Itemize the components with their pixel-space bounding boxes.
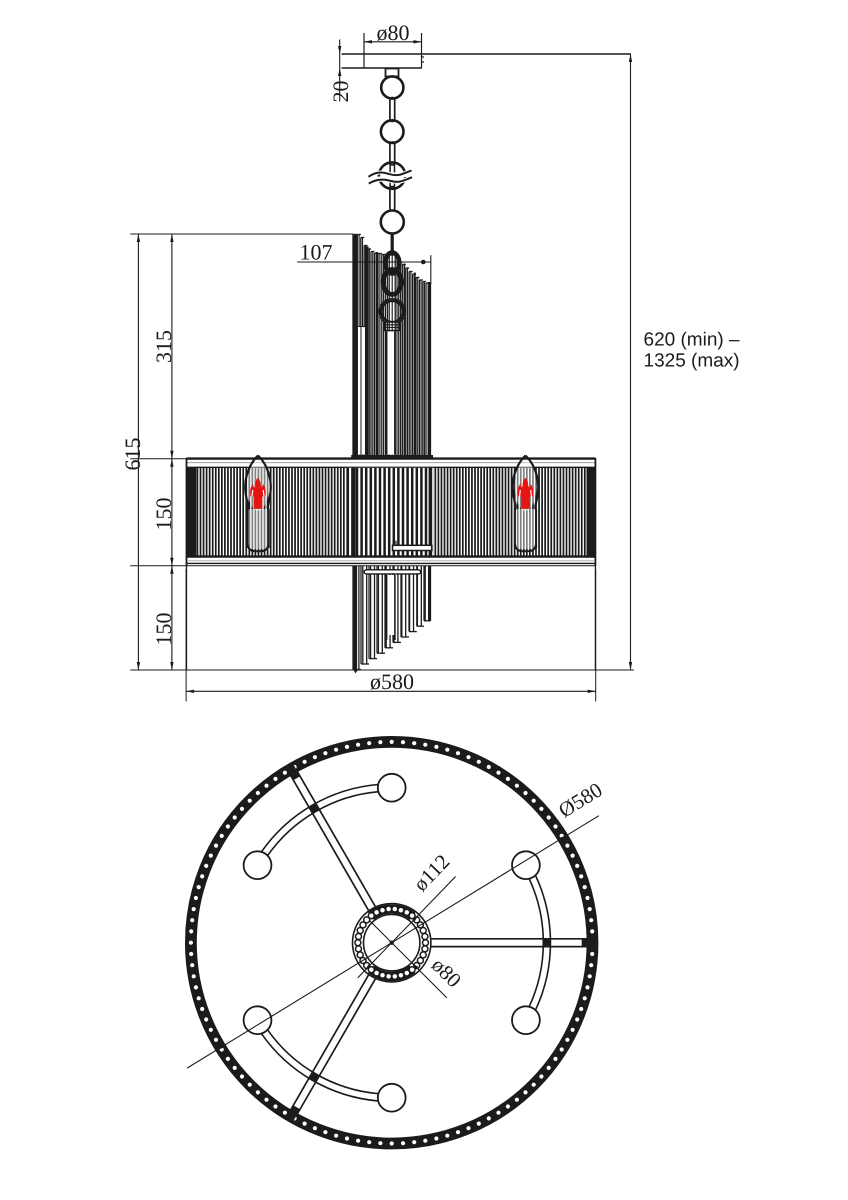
svg-text:150: 150 [151,613,176,646]
svg-text:150: 150 [151,498,176,531]
svg-text:ø580: ø580 [370,669,414,694]
svg-text:1325 (max): 1325 (max) [644,351,740,372]
svg-text:ø80: ø80 [377,20,410,45]
svg-text:107: 107 [300,240,333,265]
svg-text:620 (min) –: 620 (min) – [644,330,741,351]
svg-text:20: 20 [328,81,353,103]
svg-text:315: 315 [151,330,176,363]
svg-text:615: 615 [120,438,145,471]
